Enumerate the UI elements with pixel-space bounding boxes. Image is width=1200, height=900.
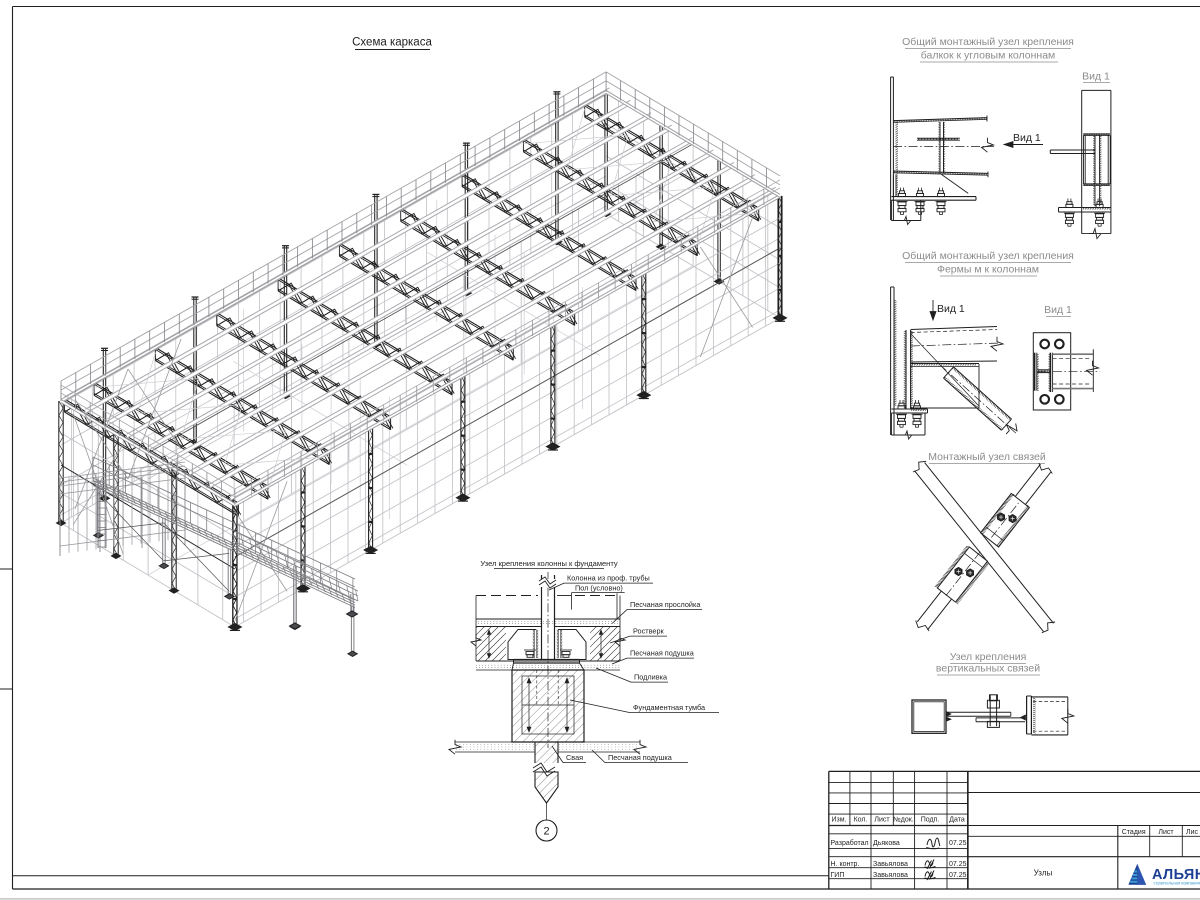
svg-text:Колонна из проф. трубы: Колонна из проф. трубы [567, 574, 650, 583]
svg-text:вертикальных связей: вертикальных связей [936, 663, 1040, 675]
svg-text:Монтажный узел связей: Монтажный узел связей [928, 451, 1046, 463]
svg-text:Лист: Лист [1158, 829, 1174, 836]
svg-text:Фундаментная тумба: Фундаментная тумба [633, 703, 706, 712]
svg-text:Узлы: Узлы [1034, 869, 1053, 878]
svg-text:Лист: Лист [874, 817, 890, 824]
svg-text:Изм.: Изм. [832, 817, 847, 824]
svg-text:2: 2 [543, 826, 549, 838]
svg-text:Разработал: Разработал [831, 839, 869, 847]
svg-text:строительная компания: строительная компания [1154, 880, 1200, 885]
svg-text:Вид 1: Вид 1 [1013, 132, 1041, 144]
svg-text:07.25: 07.25 [949, 872, 967, 879]
svg-text:Лис: Лис [1186, 829, 1199, 836]
svg-text:Завьялова: Завьялова [873, 861, 908, 868]
svg-text:№док.: №док. [893, 817, 914, 824]
svg-text:Фермы м к колоннам: Фермы м к колоннам [937, 264, 1039, 276]
svg-text:Песчаная подушка: Песчаная подушка [630, 649, 695, 658]
svg-text:Свая: Свая [566, 753, 583, 762]
svg-text:Н. контр.: Н. контр. [831, 861, 860, 868]
svg-text:Ростверк: Ростверк [633, 627, 665, 636]
svg-text:ГИП: ГИП [831, 872, 845, 879]
svg-text:07.25: 07.25 [949, 861, 967, 868]
svg-text:Дьякова: Дьякова [873, 840, 900, 847]
svg-text:Подп.: Подп. [921, 817, 940, 824]
svg-text:Подливка: Подливка [634, 673, 668, 682]
svg-text:Кол.: Кол. [854, 817, 868, 824]
svg-text:балкок к угловым колоннам: балкок к угловым колоннам [921, 50, 1056, 62]
svg-text:Вид 1: Вид 1 [1082, 71, 1110, 83]
svg-text:Вид 1: Вид 1 [1044, 304, 1072, 316]
svg-text:Дата: Дата [949, 817, 965, 824]
svg-text:Стадия: Стадия [1122, 829, 1146, 836]
svg-text:07.25: 07.25 [949, 840, 967, 847]
svg-text:Общий монтажный узел крепления: Общий монтажный узел крепления [902, 250, 1074, 262]
svg-text:Завьялова: Завьялова [873, 872, 908, 879]
svg-text:Общий монтажный узел крепления: Общий монтажный узел крепления [902, 36, 1074, 48]
svg-text:Узел крепления колонны к фунда: Узел крепления колонны к фундаменту [480, 559, 617, 568]
svg-text:Песчаная подушка: Песчаная подушка [608, 753, 673, 762]
svg-text:Схема каркаса: Схема каркаса [352, 37, 432, 49]
svg-text:Узел крепления: Узел крепления [950, 651, 1027, 663]
svg-text:Песчаная прослойка: Песчаная прослойка [630, 600, 701, 609]
svg-text:Пол (условно): Пол (условно) [575, 584, 623, 593]
svg-text:Вид 1: Вид 1 [937, 303, 965, 315]
